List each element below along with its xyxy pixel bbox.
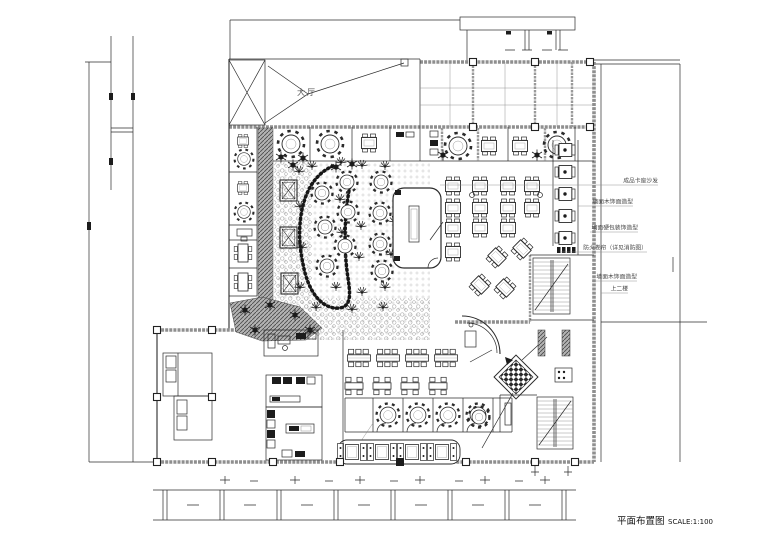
rect-table [234, 273, 252, 291]
dimension-ticks [220, 476, 550, 484]
hatched-walkway [258, 128, 273, 320]
drawing-scale: SCALE:1:100 [668, 518, 713, 526]
site-lines-bottom [153, 476, 576, 520]
rounded-room [393, 188, 441, 268]
square-table [513, 137, 528, 155]
annotation-label: 成品卡座沙发 [623, 177, 658, 185]
annotation-label: 上二楼 [611, 285, 629, 293]
site-lines-left [85, 36, 157, 462]
round-table [445, 133, 471, 159]
stairwell-mid [530, 255, 594, 320]
floor-plan-sheet: 大厅 [0, 0, 780, 551]
round-table [235, 150, 254, 169]
hall-label: 大厅 [297, 87, 317, 97]
annotations-right: 成品卡座沙发 墙面木饰面造型 墙面硬包装饰造型 防火卷帘（详见消防图） 墙面木饰… [440, 177, 658, 294]
square-table [482, 137, 497, 155]
square-table [238, 182, 249, 195]
site-lines-top [230, 17, 575, 62]
entrance-area [469, 330, 573, 476]
square-table [238, 135, 249, 148]
rect-table [234, 244, 252, 262]
private-rooms-left [229, 127, 257, 296]
grand-hall: 大厅 [229, 59, 420, 127]
title-block: 平面布置图 SCALE:1:100 [617, 515, 713, 527]
annotation-label: 墙面硬包装饰造型 [592, 224, 639, 232]
stairwell-bottom [537, 397, 573, 449]
drawing-title: 平面布置图 [617, 515, 665, 527]
round-table [278, 131, 304, 157]
round-table [317, 131, 343, 157]
service-rooms-left [154, 327, 216, 441]
terrace-grid [420, 59, 594, 131]
annotation-label: 墙面木饰面造型 [596, 273, 637, 281]
round-table [235, 203, 254, 222]
floor-plan-drawing: 大厅 [0, 0, 780, 551]
main-dining-area [430, 150, 543, 300]
annotation-label: 防火卷帘（详见消防图） [583, 244, 647, 252]
booth-column [553, 140, 578, 255]
long-table-rows [345, 349, 458, 394]
floor-medallion [494, 355, 538, 399]
annotation-label: 墙面木饰面造型 [592, 198, 633, 206]
site-lines-right [590, 60, 707, 462]
square-table [362, 134, 377, 152]
diamond-tables [468, 237, 533, 299]
kitchen-block [264, 330, 343, 462]
dining-room-row-top [272, 127, 594, 161]
